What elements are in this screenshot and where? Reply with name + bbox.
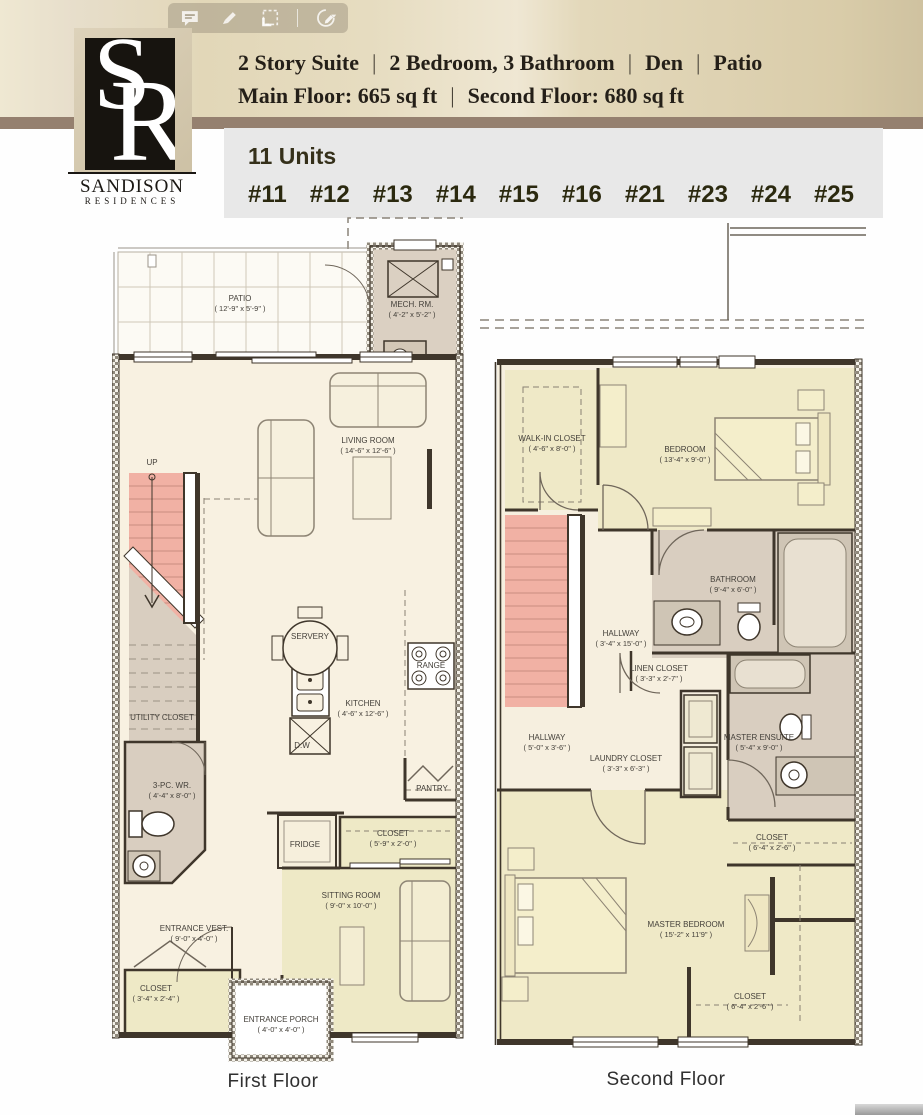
- label-hallway-lower: HALLWAY( 5'-0" x 3'-6" ): [524, 733, 571, 753]
- label-fridge: FRIDGE: [290, 840, 320, 850]
- nightstand-icon: [502, 977, 528, 1001]
- room-dim: ( 4'-2" x 5'-2" ): [389, 310, 436, 320]
- label-mech: MECH. RM.( 4'-2" x 5'-2" ): [389, 300, 436, 320]
- unit-number: #11: [248, 181, 287, 209]
- header-title-block: 2 Story Suite|2 Bedroom, 3 Bathroom|Den|…: [238, 46, 762, 112]
- unit-number: #21: [625, 181, 665, 209]
- annotation-toolbar: [168, 3, 348, 33]
- sofa-icon: [400, 881, 450, 1001]
- title-separator: |: [683, 50, 713, 75]
- first-floor-plan: PATIO( 12'-9" x 5'-9" ) MECH. RM.( 4'-2"…: [112, 215, 464, 1065]
- label-range: RANGE: [417, 661, 445, 671]
- construction-lines: [480, 223, 866, 328]
- master-bed-icon: [505, 875, 626, 976]
- logo-subtitle: RESIDENCES: [66, 196, 198, 206]
- area-part: Second Floor: 680 sq ft: [468, 83, 684, 108]
- room-name: CLOSET: [133, 984, 180, 994]
- room-dim: ( 9'-4" x 6'-0" ): [710, 585, 757, 595]
- room-name: PATIO: [214, 294, 265, 304]
- room-dim: ( 3'-4" x 15'-0" ): [595, 639, 646, 649]
- toilet-icon: [738, 614, 760, 640]
- brochure-page: S R SANDISON RESIDENCES 2 Story Suite|2 …: [0, 0, 923, 1115]
- room-name: HALLWAY: [595, 629, 646, 639]
- suite-title-line: 2 Story Suite|2 Bedroom, 3 Bathroom|Den|…: [238, 46, 762, 79]
- coffee-table-icon: [353, 457, 391, 519]
- toilet-tank: [738, 603, 760, 612]
- toolbar-separator: [297, 9, 298, 27]
- nightstand-icon: [798, 390, 824, 410]
- unit-number: #12: [310, 181, 350, 209]
- unit-number: #24: [751, 181, 791, 209]
- title-part: 2 Bedroom, 3 Bathroom: [389, 50, 614, 75]
- room-dim: ( 4'-4" x 8'-0" ): [149, 791, 196, 801]
- label-kitchen: KITCHEN( 4'-6" x 12'-6" ): [337, 699, 388, 719]
- room-dim: ( 9'-0" x 4'-0" ): [160, 934, 228, 944]
- room-dim: ( 4'-6" x 8'-0" ): [518, 444, 585, 454]
- logo-rule: [68, 172, 196, 174]
- room-dim: ( 12'-9" x 5'-9" ): [214, 304, 265, 314]
- nightstand-icon: [508, 848, 534, 870]
- room-name: ENTRANCE VEST.: [160, 924, 228, 934]
- label-dishwasher: D.W: [294, 741, 310, 751]
- room-name: MECH. RM.: [389, 300, 436, 310]
- room-dim: ( 9'-0" x 10'-0" ): [322, 901, 381, 911]
- logo-name: SANDISON: [66, 176, 198, 198]
- comment-icon[interactable]: [178, 6, 202, 30]
- label-utility: UTILITY CLOSET: [130, 713, 194, 723]
- room-dim: ( 13'-4" x 9'-0" ): [659, 455, 710, 465]
- unit-number: #23: [688, 181, 728, 209]
- unit-number: #25: [814, 181, 854, 209]
- bench-icon: [653, 508, 711, 526]
- nightstand-icon: [798, 483, 824, 505]
- second-floor-plan: WALK-IN CLOSET( 4'-6" x 8'-0" ) BEDROOM(…: [478, 215, 868, 1065]
- label-linen: LINEN CLOSET( 3'-3" x 2'-7" ): [630, 664, 688, 684]
- label-living: LIVING ROOM( 14'-6" x 12'-6" ): [340, 436, 395, 456]
- label-pantry: PANTRY: [416, 784, 448, 794]
- unit-number: #16: [562, 181, 602, 209]
- unit-number: #13: [373, 181, 413, 209]
- label-vestibule: ENTRANCE VEST.( 9'-0" x 4'-0" ): [160, 924, 228, 944]
- select-region-icon[interactable]: [258, 6, 282, 30]
- label-entry-closet: CLOSET( 3'-4" x 2'-4" ): [133, 984, 180, 1004]
- label-kitchen-closet: CLOSET( 5'-9" x 2'-0" ): [370, 829, 417, 849]
- label-closet-lower: CLOSET( 6'-4" x 2'-6" ): [727, 992, 774, 1012]
- room-name: MASTER BEDROOM: [648, 920, 725, 930]
- room-dim: ( 15'-2" x 11'9" ): [648, 930, 725, 940]
- title-separator: |: [615, 50, 645, 75]
- dresser-icon: [600, 385, 626, 447]
- label-laundry: LAUNDRY CLOSET( 3'-3" x 6'-3" ): [590, 754, 662, 774]
- title-separator: |: [437, 83, 467, 108]
- room-dim: ( 6'-4" x 2'-6" ): [727, 1002, 774, 1012]
- label-wr: 3-PC. WR.( 4'-4" x 8'-0" ): [149, 781, 196, 801]
- room-name: LINEN CLOSET: [630, 664, 688, 674]
- unit-number: #14: [436, 181, 476, 209]
- label-hallway-upper: HALLWAY( 3'-4" x 15'-0" ): [595, 629, 646, 649]
- label-master: MASTER BEDROOM( 15'-2" x 11'9" ): [648, 920, 725, 940]
- room-name: CLOSET: [749, 833, 796, 843]
- room-dim: ( 5'-4" x 9'-0" ): [724, 743, 794, 753]
- room-name: LAUNDRY CLOSET: [590, 754, 662, 764]
- logo-monogram: S R: [85, 38, 175, 170]
- room-dim: ( 4'-6" x 12'-6" ): [337, 709, 388, 719]
- label-closet-upper: CLOSET( 6'-4" x 2'-6" ): [749, 833, 796, 853]
- room-dim: ( 5'-9" x 2'-0" ): [370, 839, 417, 849]
- title-part: Patio: [713, 50, 762, 75]
- room-name: HALLWAY: [524, 733, 571, 743]
- tv-icon: [427, 449, 432, 509]
- room-name: BATHROOM: [710, 575, 757, 585]
- label-servery: SERVERY: [291, 632, 329, 642]
- label-bathroom: BATHROOM( 9'-4" x 6'-0" ): [710, 575, 757, 595]
- room-name: BEDROOM: [659, 445, 710, 455]
- room-dim: ( 3'-4" x 2'-4" ): [133, 994, 180, 1004]
- toilet-tank: [802, 715, 811, 739]
- label-patio: PATIO( 12'-9" x 5'-9" ): [214, 294, 265, 314]
- room-name: WALK-IN CLOSET: [518, 434, 585, 444]
- sign-icon[interactable]: [314, 6, 338, 30]
- label-porch: ENTRANCE PORCH( 4'-0" x 4'-0" ): [243, 1015, 318, 1035]
- sink-icon: [781, 762, 807, 788]
- room-dim: ( 4'-0" x 4'-0" ): [243, 1025, 318, 1035]
- room-dim: ( 3'-3" x 6'-3" ): [590, 764, 662, 774]
- room-name: 3-PC. WR.: [149, 781, 196, 791]
- room-dim: ( 3'-3" x 2'-7" ): [630, 674, 688, 684]
- label-sitting: SITTING ROOM( 9'-0" x 10'-0" ): [322, 891, 381, 911]
- room-name: SITTING ROOM: [322, 891, 381, 901]
- sink-icon: [128, 851, 160, 881]
- monogram-r: R: [110, 62, 175, 170]
- title-part: 2 Story Suite: [238, 50, 359, 75]
- unit-numbers-row: #11 #12 #13 #14 #15 #16 #21 #23 #24 #25: [248, 181, 854, 209]
- label-walkin: WALK-IN CLOSET( 4'-6" x 8'-0" ): [518, 434, 585, 454]
- room-name: ENTRANCE PORCH: [243, 1015, 318, 1025]
- first-floor-caption: First Floor: [228, 1071, 319, 1093]
- toilet-icon: [129, 811, 174, 837]
- unit-number: #15: [499, 181, 539, 209]
- floor-area-line: Main Floor: 665 sq ft|Second Floor: 680 …: [238, 79, 762, 112]
- bed-icon: [715, 413, 830, 485]
- room-name: CLOSET: [370, 829, 417, 839]
- side-table-icon: [340, 927, 364, 985]
- label-ensuite: MASTER ENSUITE( 5'-4" x 9'-0" ): [724, 733, 794, 753]
- loveseat-icon: [330, 373, 426, 427]
- highlighter-icon[interactable]: [218, 6, 242, 30]
- stairs-down: [505, 515, 585, 707]
- room-dim: ( 14'-6" x 12'-6" ): [340, 446, 395, 456]
- sink-icon: [672, 609, 702, 635]
- label-bedroom: BEDROOM( 13'-4" x 9'-0" ): [659, 445, 710, 465]
- area-part: Main Floor: 665 sq ft: [238, 83, 437, 108]
- scan-edge-artifact: [855, 1104, 923, 1115]
- washroom-area: [125, 742, 205, 883]
- room-dim: ( 5'-0" x 3'-6" ): [524, 743, 571, 753]
- units-count: 11 Units: [248, 143, 336, 170]
- title-separator: |: [359, 50, 389, 75]
- second-floor-caption: Second Floor: [606, 1069, 725, 1091]
- room-name: KITCHEN: [337, 699, 388, 709]
- room-dim: ( 6'-4" x 2'-6" ): [749, 843, 796, 853]
- label-up: UP: [146, 458, 157, 468]
- room-name: CLOSET: [727, 992, 774, 1002]
- room-name: MASTER ENSUITE: [724, 733, 794, 743]
- room-name: LIVING ROOM: [340, 436, 395, 446]
- title-part: Den: [645, 50, 683, 75]
- sectional-sofa-icon: [258, 420, 314, 536]
